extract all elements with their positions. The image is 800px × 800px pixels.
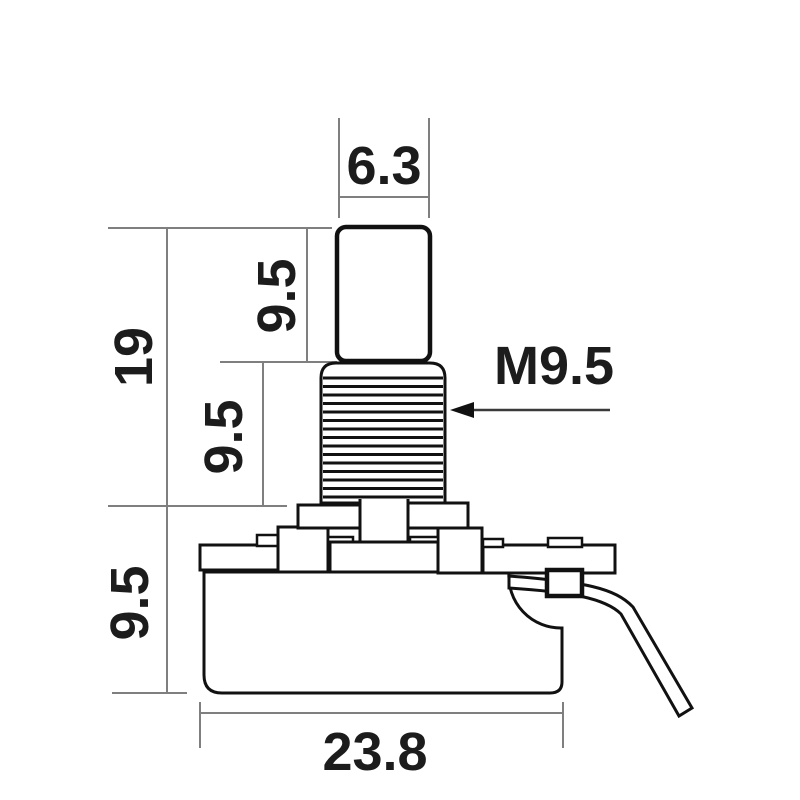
label-body-height: 9.5 (100, 565, 160, 640)
technical-drawing-potentiometer: 6.3 9.5 9.5 19 9.5 23.8 M9.5 (0, 0, 800, 800)
frame-left-pillar (278, 527, 328, 572)
frame-right-pillar (438, 528, 482, 573)
thread-lines (323, 378, 443, 497)
label-thread-spec: M9.5 (494, 336, 614, 396)
shaft (337, 227, 430, 361)
label-shaft-diameter: 6.3 (346, 136, 421, 196)
frame-right-shoulder (408, 503, 468, 528)
terminal-lug (547, 570, 582, 596)
terminal-strip-top-tab (548, 538, 582, 547)
label-overall-height: 19 (104, 327, 164, 387)
frame-center-neck (360, 499, 408, 543)
label-thread-height: 9.5 (194, 399, 254, 474)
leader-arrowhead-icon (450, 402, 474, 418)
pot-body (204, 572, 562, 693)
frame-left-ear-step (257, 535, 278, 546)
label-shaft-height: 9.5 (247, 258, 307, 333)
frame-left-ear (200, 545, 278, 570)
label-body-width: 23.8 (322, 722, 427, 782)
drawing-canvas: 6.3 9.5 9.5 19 9.5 23.8 M9.5 (0, 0, 800, 800)
frame-left-shoulder (298, 505, 360, 528)
threaded-bushing (321, 363, 445, 503)
frame-center-plate (330, 542, 438, 572)
terminal-strip-left-tab (483, 539, 503, 547)
thread-spec-leader (450, 402, 610, 418)
